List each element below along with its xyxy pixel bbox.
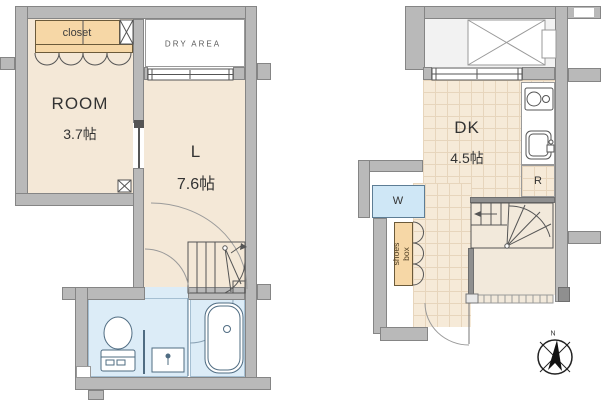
wall-window-jamb-right xyxy=(233,67,245,80)
living-size-label: 7.6帖 xyxy=(177,170,215,194)
entry-step-notch xyxy=(76,366,91,378)
living-label: L xyxy=(191,142,201,162)
wall-top-left-plan xyxy=(15,6,257,19)
wall-bottom-left-plan xyxy=(75,377,271,390)
wall-dk-window-jamb-right xyxy=(522,67,555,80)
floor-plan-canvas: closet DRY AREA ROOM 3.7帖 L 7.6帖 DK 4.5帖… xyxy=(0,0,601,404)
wall-top-right-plan xyxy=(405,6,601,19)
wall-right xyxy=(245,6,257,390)
compass-icon xyxy=(538,340,572,374)
wall-entrance-left xyxy=(373,218,387,334)
wall-step-tab xyxy=(88,390,104,400)
hall-step-edge xyxy=(468,248,474,298)
dk-label: DK xyxy=(454,118,480,138)
washer-label: W xyxy=(393,195,403,207)
room-label: ROOM xyxy=(52,94,109,114)
room-size-label: 3.7帖 xyxy=(63,124,96,144)
dry-area-label: DRY AREA xyxy=(165,40,221,49)
refrigerator-label: R xyxy=(534,175,542,187)
wall-stub-east-lower xyxy=(568,231,601,244)
washroom-floor xyxy=(88,298,188,377)
wall-room-divider-upper xyxy=(133,19,144,123)
wall-balcony-left xyxy=(405,6,425,70)
wall-room-bottom xyxy=(15,193,135,206)
wall-corner-dark xyxy=(558,287,570,302)
bathroom-floor xyxy=(190,298,245,377)
balcony-floor xyxy=(425,19,555,67)
compass-north-label: N xyxy=(550,331,555,338)
wall-stub-east-upper xyxy=(568,68,601,82)
porch-step-icon xyxy=(466,294,553,303)
closet-label: closet xyxy=(63,27,92,39)
wall-stub-east-top xyxy=(257,63,271,80)
wall-alcove-left xyxy=(358,160,370,218)
wall-left xyxy=(15,6,28,206)
neighbor-wall-gap xyxy=(574,8,594,17)
wall-window-jamb-left xyxy=(144,67,148,80)
wall-room-divider-lower xyxy=(133,168,144,293)
shoes-box-label: shoes box xyxy=(392,239,414,269)
window-icon-right xyxy=(432,68,522,80)
wall-entrance-bottom xyxy=(380,327,428,341)
wall-stub-east-mid xyxy=(257,284,271,300)
closet-shelf xyxy=(35,44,133,53)
wall-dk-window-jamb-left xyxy=(423,67,432,80)
dk-size-label: 4.5帖 xyxy=(450,148,483,168)
wall-sanitary-top-right xyxy=(188,287,245,300)
window-icon-left xyxy=(148,69,233,80)
stair-top-beam xyxy=(470,197,555,203)
room-sliding-door-icon xyxy=(134,120,144,168)
kitchen-counter xyxy=(521,82,555,165)
wall-stub-west xyxy=(0,57,15,70)
hall-floor xyxy=(471,203,555,295)
wall-right-east xyxy=(555,6,568,302)
